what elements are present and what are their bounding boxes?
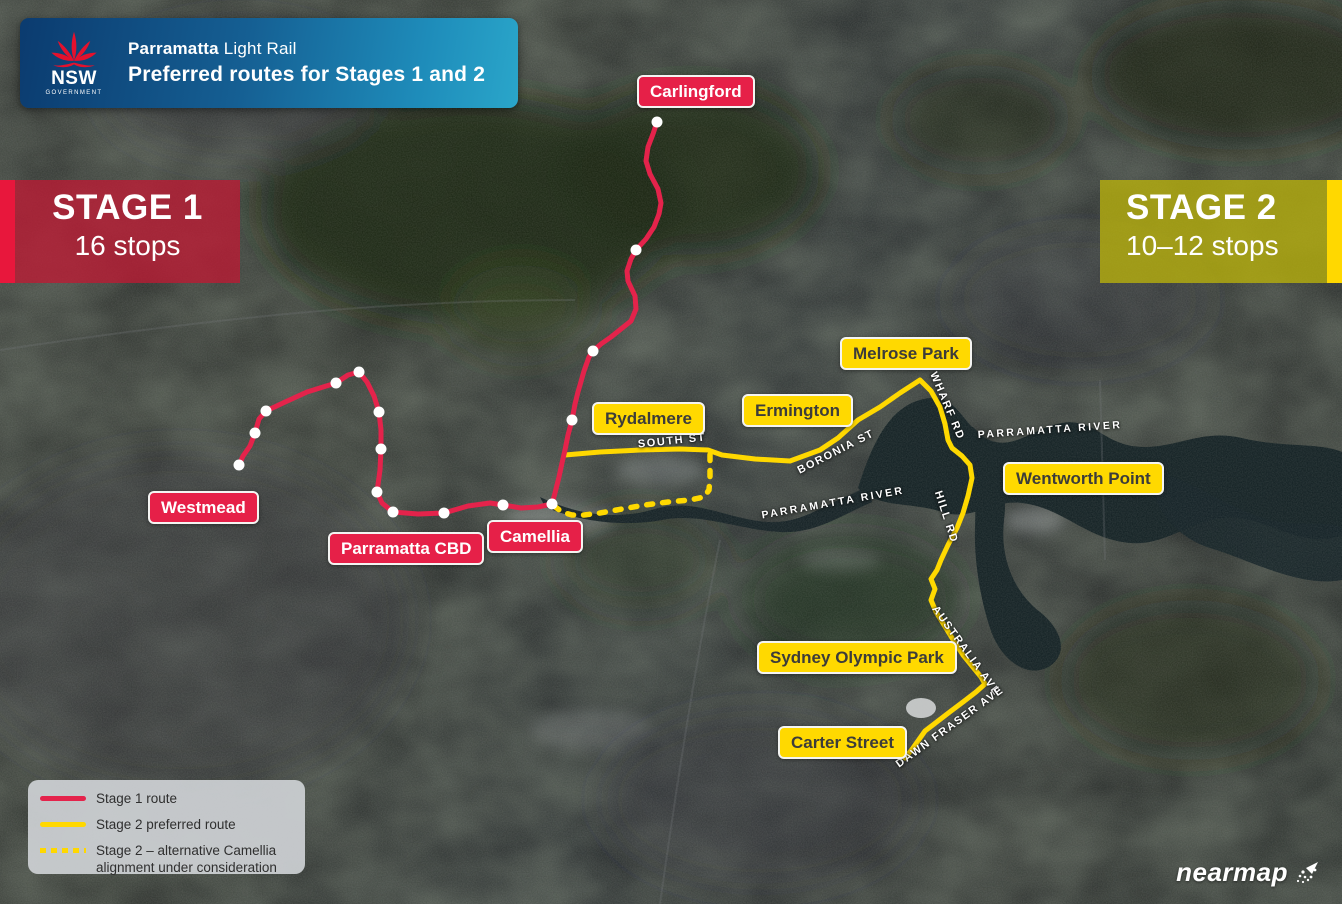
stage1-accent-strip — [0, 180, 15, 283]
station-label-carlingford: Carlingford — [637, 75, 755, 108]
legend: Stage 1 route Stage 2 preferred route St… — [28, 780, 305, 874]
station-label-ermington: Ermington — [742, 394, 853, 427]
legend-item-stage1: Stage 1 route — [40, 791, 293, 808]
map-canvas: SOUTH ST BORONIA ST WHARF RD PARRAMATTA … — [0, 0, 1342, 904]
station-label-wentworth-point: Wentworth Point — [1003, 462, 1164, 495]
stage2-alternative-route-swatch — [40, 848, 86, 853]
legend-item-stage2-alternative: Stage 2 – alternative Camellia alignment… — [40, 843, 293, 877]
stage2-route-swatch — [40, 822, 86, 827]
nearmap-logo-text: nearmap — [1176, 857, 1288, 888]
legend-label: Stage 2 – alternative Camellia alignment… — [96, 843, 293, 877]
station-label-rydalmere: Rydalmere — [592, 402, 705, 435]
satellite-map — [0, 0, 1342, 904]
stage2-title: STAGE 2 — [1126, 190, 1327, 227]
stage1-title: STAGE 1 — [15, 190, 240, 227]
stage2-stop-count: 10–12 stops — [1126, 230, 1327, 262]
stage2-badge: STAGE 2 10–12 stops — [1100, 180, 1327, 283]
station-label-sydney-olympic-park: Sydney Olympic Park — [757, 641, 957, 674]
station-label-camellia: Camellia — [487, 520, 583, 553]
nsw-logo-text: NSW — [51, 69, 97, 88]
stage2-accent-strip — [1327, 180, 1342, 283]
nearmap-arrow-icon — [1292, 858, 1322, 888]
legend-label: Stage 2 preferred route — [96, 817, 236, 834]
station-label-melrose-park: Melrose Park — [840, 337, 972, 370]
nearmap-watermark: nearmap — [1176, 857, 1322, 888]
station-label-westmead: Westmead — [148, 491, 259, 524]
nsw-government-logo: NSW GOVERNMENT — [38, 30, 110, 96]
grain-overlay — [0, 0, 1342, 904]
station-label-carter-street: Carter Street — [778, 726, 907, 759]
stage1-badge: STAGE 1 16 stops — [15, 180, 240, 283]
legend-label: Stage 1 route — [96, 791, 177, 808]
title-banner: NSW GOVERNMENT Parramatta Light Rail Pre… — [20, 18, 518, 108]
banner-subtitle: Preferred routes for Stages 1 and 2 — [128, 63, 485, 87]
waratah-icon — [45, 30, 103, 68]
stage1-stop-count: 16 stops — [15, 230, 240, 262]
stage1-route-swatch — [40, 796, 86, 801]
banner-title-bold: Parramatta — [128, 39, 219, 58]
legend-item-stage2: Stage 2 preferred route — [40, 817, 293, 834]
banner-title: Parramatta Light Rail — [128, 39, 485, 59]
station-label-parramatta-cbd: Parramatta CBD — [328, 532, 484, 565]
banner-title-regular: Light Rail — [219, 39, 297, 58]
nsw-logo-subtext: GOVERNMENT — [45, 90, 102, 96]
